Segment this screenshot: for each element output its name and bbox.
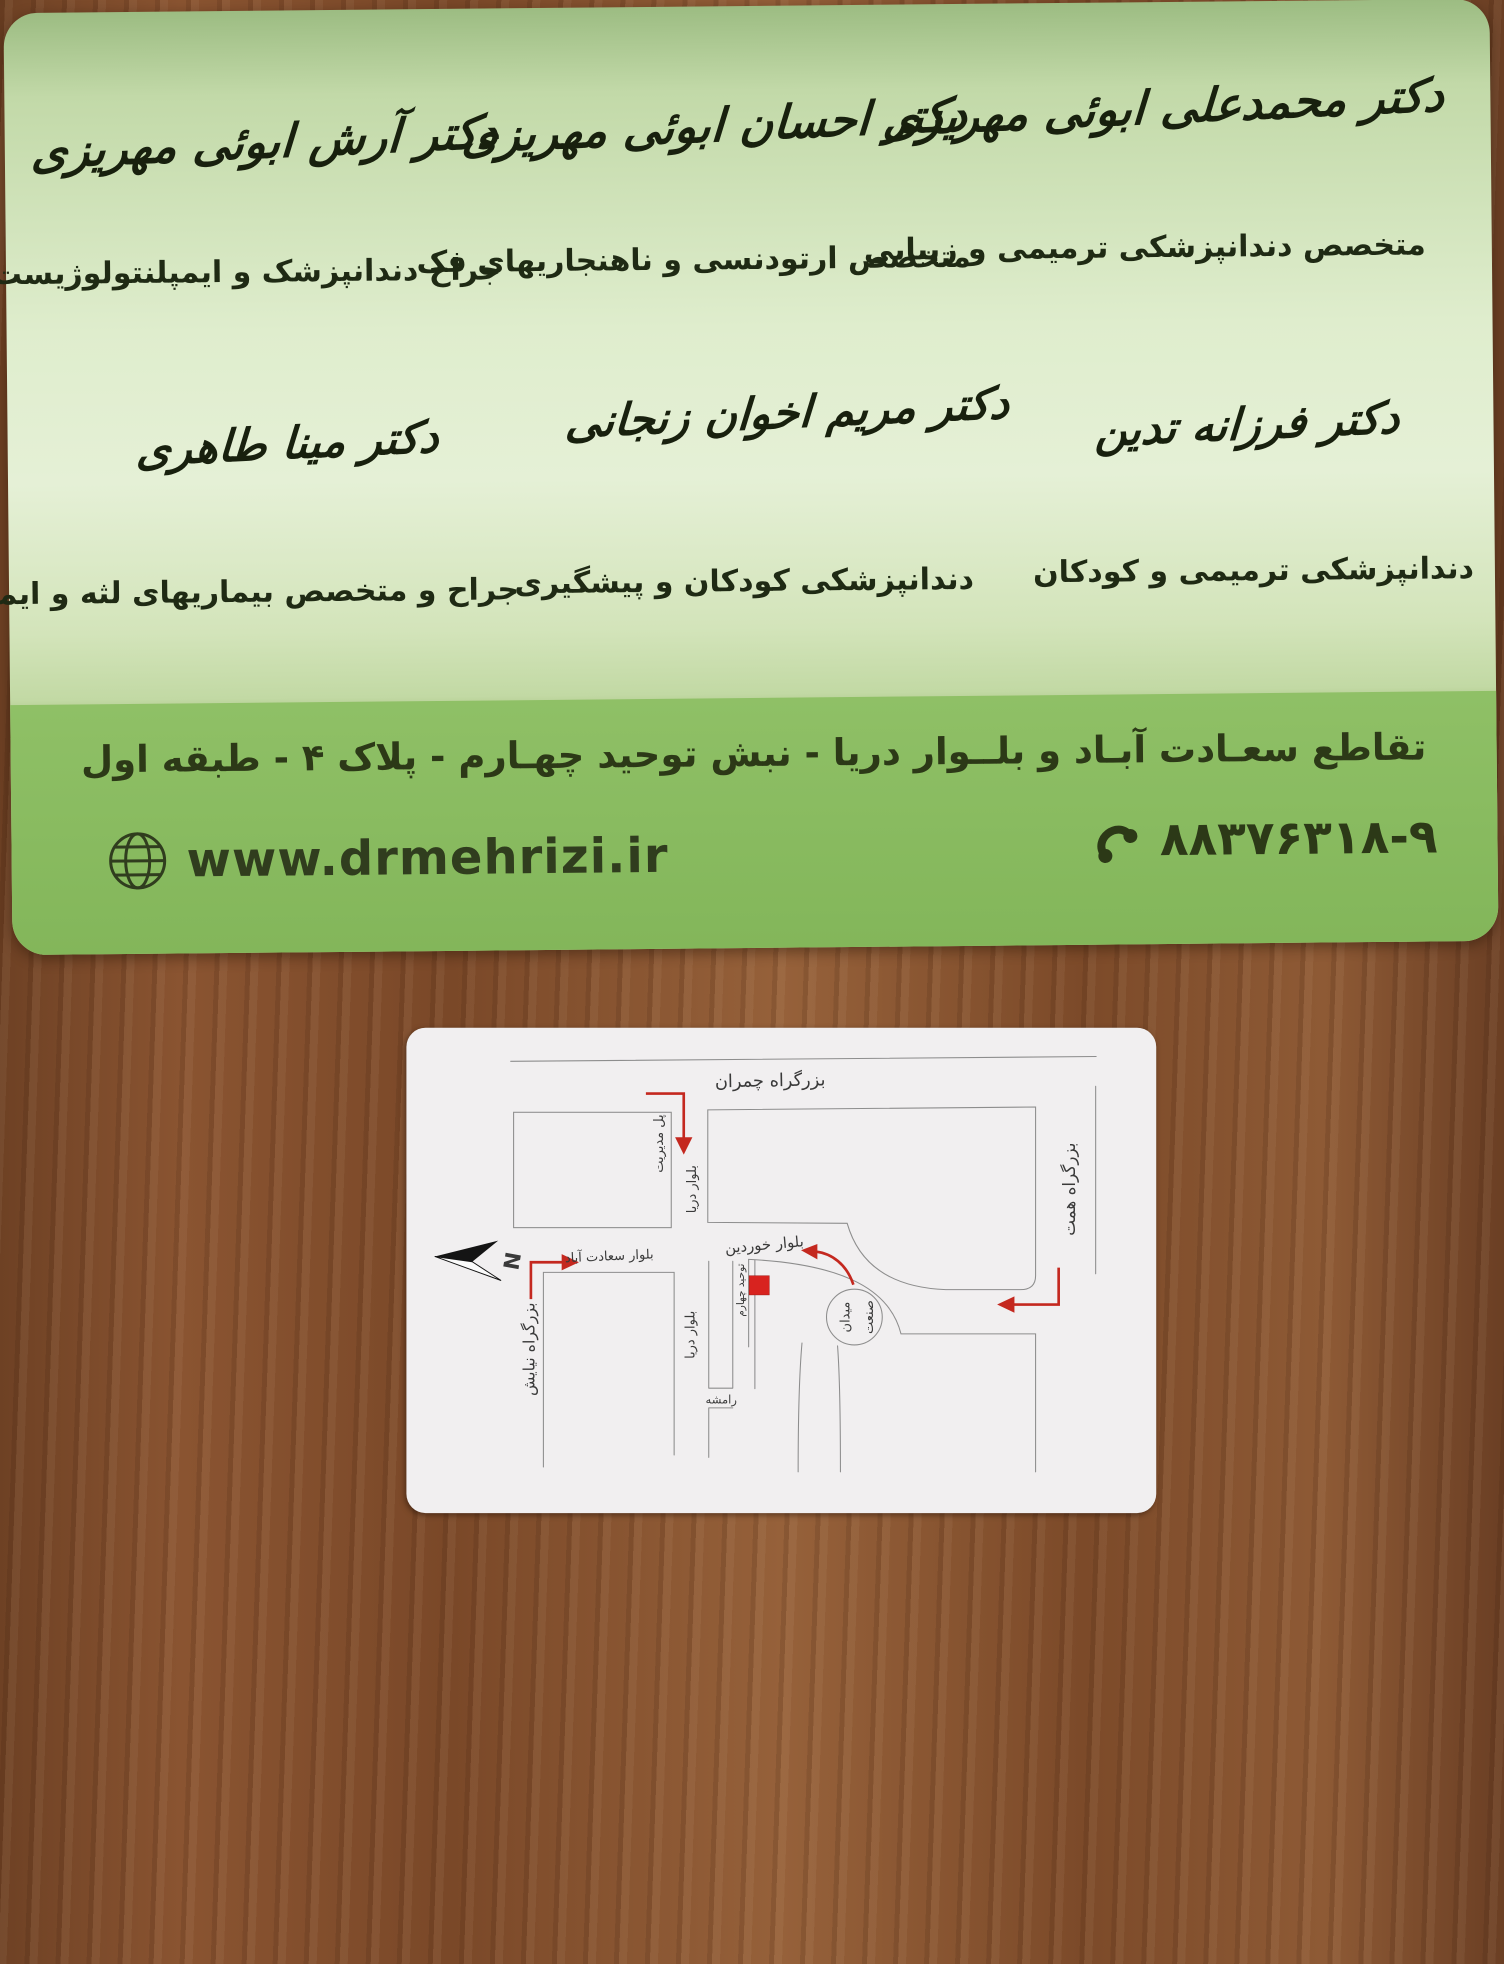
doctor-name: دکتر مینا طاهری — [61, 408, 514, 479]
label-tohid-4th: توحید چهارم — [735, 1263, 747, 1316]
label-modiriat-bridge: پل مدیریت — [652, 1114, 667, 1173]
doctor-specialty: جراح و متخصص بیماریهای لثه و ایمپلنت — [29, 572, 519, 612]
doctor-specialty: دندانپزشکی کودکان و پیشگیری — [564, 562, 974, 601]
website-row: www.drmehrizi.ir — [106, 825, 668, 892]
clinic-address: تقاطع سعـادت آبـاد و بلــوار دریا - نبش … — [10, 725, 1496, 782]
label-darya-blvd-upper: بلوار دریا — [685, 1165, 700, 1213]
doctor-specialty: متخصص ارتودنسی و ناهنجاریهای فک — [481, 240, 971, 280]
phone-number: ۸۸۳۷۶۳۱۸-۹ — [1160, 809, 1438, 867]
label-chamran-highway: بزرگراه چمران — [715, 1069, 826, 1092]
doctor-specialty: متخصص دندانپزشکی ترمیمی و زیبایی — [936, 228, 1426, 268]
label-sanat-square-word2: صنعت — [862, 1300, 877, 1334]
clinic-location-marker — [749, 1276, 769, 1295]
doctor-specialty: جراح دندانپزشک و ایمپلنتولوژیست — [11, 252, 501, 292]
photo-of-business-cards: دکتر محمدعلی ابوئی مهریزی دکتر احسان ابو… — [0, 0, 1504, 1964]
green-clinic-card: دکتر محمدعلی ابوئی مهریزی دکتر احسان ابو… — [4, 0, 1499, 955]
label-ramsheh: رامشه — [706, 1393, 737, 1408]
map-card: N بزرگراه چمران بزرگراه همت بزرگراه نیای… — [0, 1020, 1504, 1964]
doctor-specialty: دندانپزشکی ترمیمی و کودکان — [1064, 551, 1474, 590]
doctor-name: دکتر آرش ابوئی مهریزی — [0, 103, 536, 181]
label-niayesh-highway: بزرگراه نیایش — [519, 1302, 539, 1396]
phone-handset-icon — [1088, 814, 1140, 866]
address-band: تقاطع سعـادت آبـاد و بلــوار دریا - نبش … — [10, 691, 1498, 955]
label-hemmat-highway: بزرگراه همت — [1059, 1143, 1079, 1236]
label-sanat-square-word1: میدان — [839, 1302, 854, 1333]
website-url: www.drmehrizi.ir — [186, 828, 668, 889]
globe-icon — [106, 830, 169, 893]
phone-row: ۸۸۳۷۶۳۱۸-۹ — [1088, 809, 1438, 867]
doctor-name: دکتر فرزانه تدین — [1026, 389, 1469, 460]
doctor-name: دکتر مریم اخوان زنجانی — [551, 377, 1024, 449]
label-darya-blvd-lower: بلوار دریا — [683, 1311, 698, 1359]
contact-row: www.drmehrizi.ir ۸۸۳۷۶۳۱۸-۹ — [11, 809, 1498, 923]
